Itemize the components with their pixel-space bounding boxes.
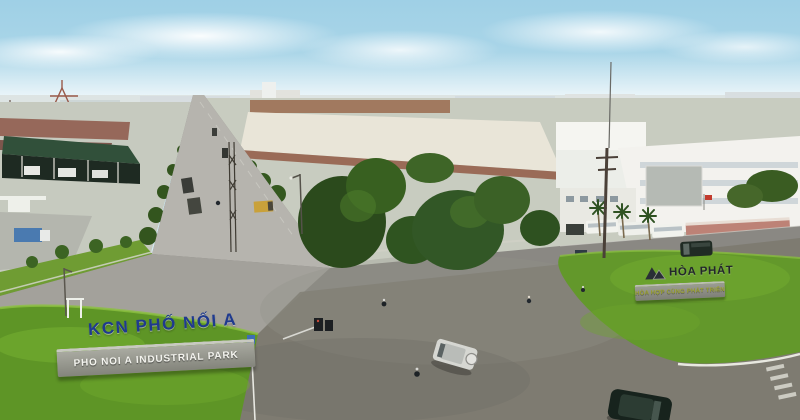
- truck: [24, 166, 40, 175]
- truck: [566, 224, 584, 235]
- road-roller: [254, 200, 274, 212]
- green-van: [680, 240, 713, 257]
- truck: [58, 168, 76, 177]
- white-fence: [0, 196, 46, 200]
- motorbike: [216, 201, 220, 205]
- aerial-photo: KCN PHỐ NỐI A PHO NOI A INDUSTRIAL PARK …: [0, 0, 800, 420]
- truck: [92, 170, 108, 178]
- truck: [187, 197, 202, 215]
- billboard: [646, 166, 702, 206]
- hoa-phat-tagline-text: HÒA HỢP CÙNG PHÁT TRIỂN: [635, 287, 725, 297]
- blue-truck: [14, 228, 50, 242]
- pho-noi-a-stone-text: PHO NOI A INDUSTRIAL PARK: [73, 350, 238, 370]
- truck: [181, 177, 194, 194]
- hoa-phat-brand-sign: HÒA PHÁT: [644, 262, 734, 280]
- white-truck: [8, 200, 30, 212]
- hoa-phat-brand-text: HÒA PHÁT: [669, 264, 734, 278]
- truck: [222, 148, 228, 158]
- vietnam-flag: [705, 195, 712, 200]
- hoa-phat-logo-icon: [644, 265, 667, 281]
- truck: [212, 128, 217, 136]
